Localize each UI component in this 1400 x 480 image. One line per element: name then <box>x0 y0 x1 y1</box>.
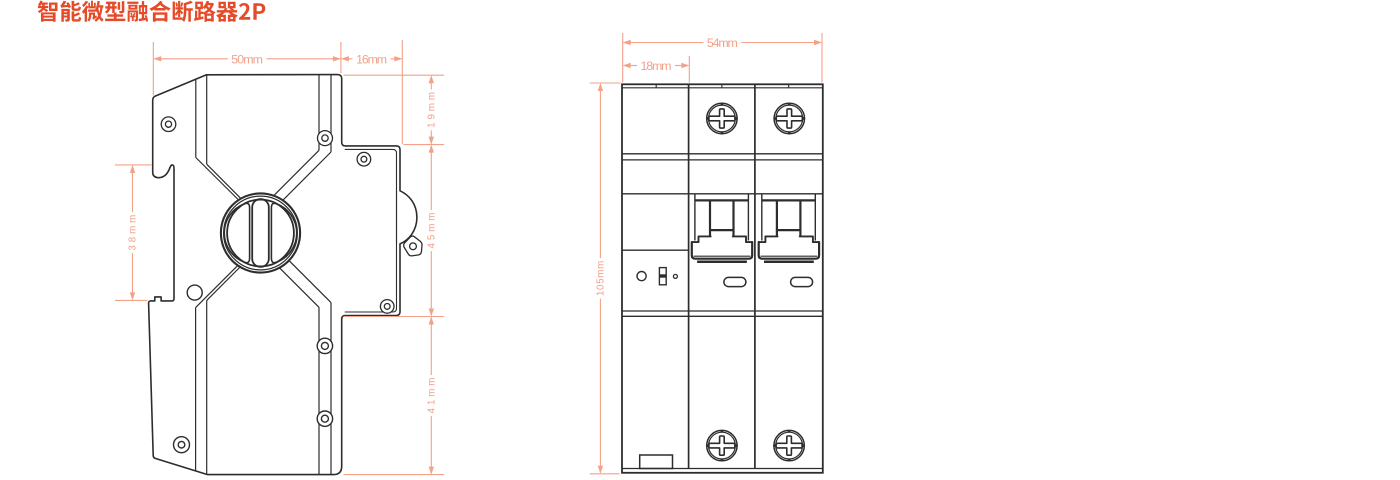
svg-text:16mm: 16mm <box>356 52 387 66</box>
svg-text:50mm: 50mm <box>231 52 263 66</box>
svg-text:45mm: 45mm <box>426 213 437 249</box>
svg-text:19mm: 19mm <box>426 92 437 128</box>
svg-text:105mm: 105mm <box>595 261 606 297</box>
svg-text:41mm: 41mm <box>426 378 437 414</box>
svg-text:38mm: 38mm <box>128 215 139 251</box>
svg-text:18mm: 18mm <box>641 59 672 73</box>
svg-text:54mm: 54mm <box>707 36 738 50</box>
